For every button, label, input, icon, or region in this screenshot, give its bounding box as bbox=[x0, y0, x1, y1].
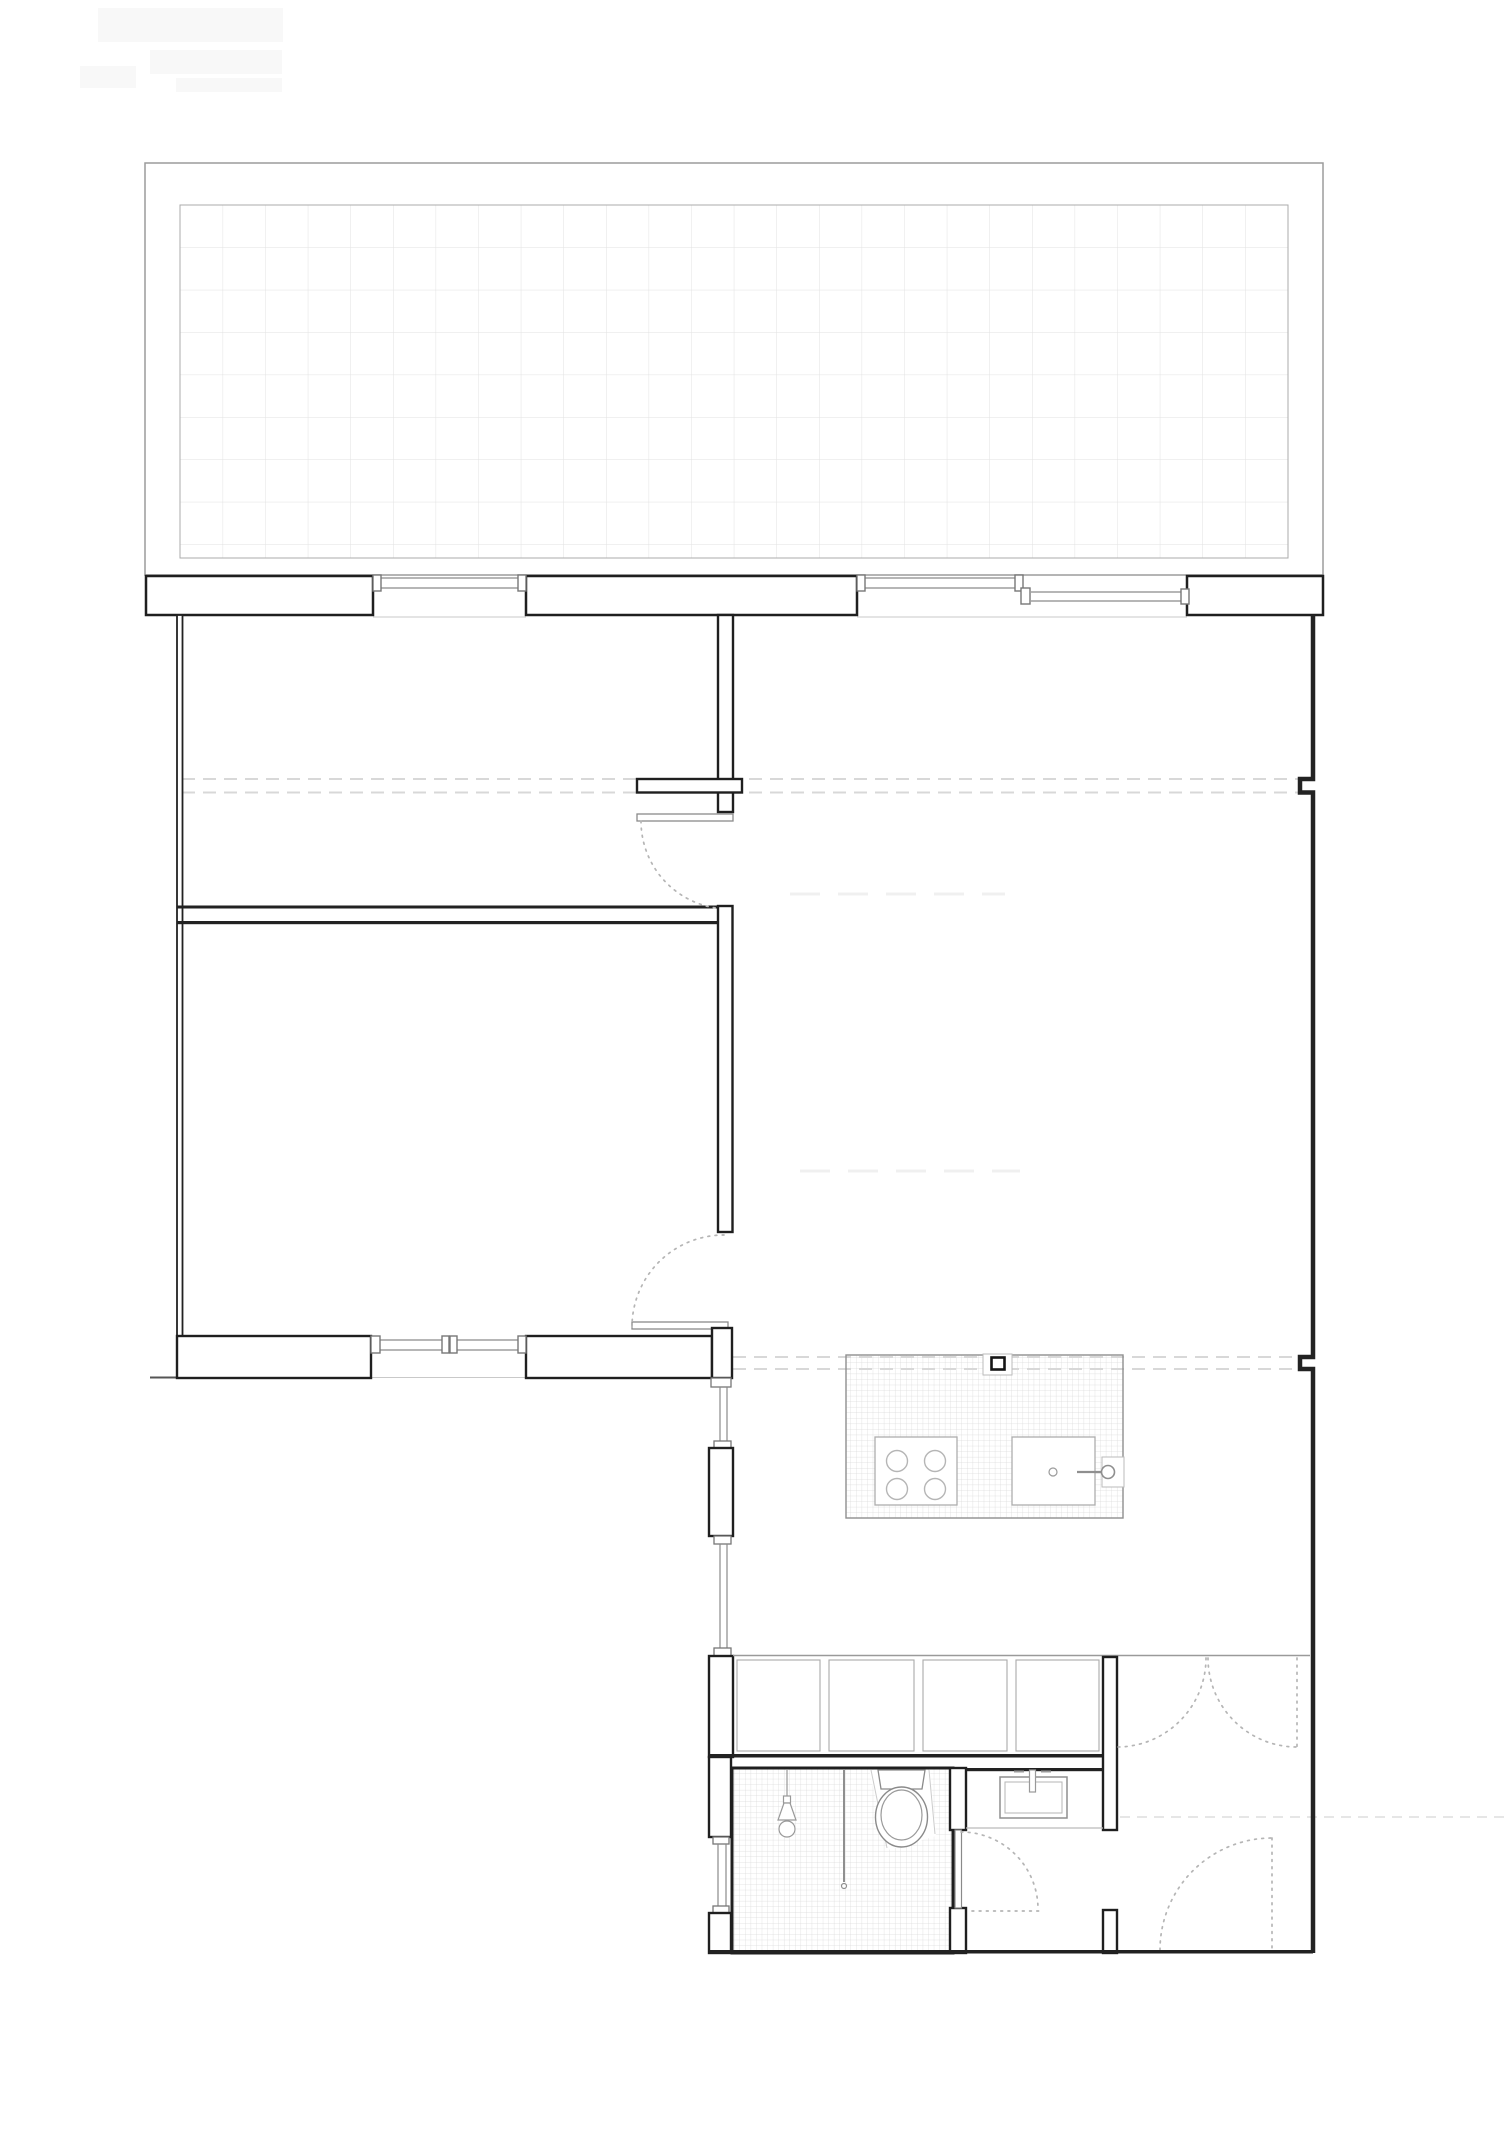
bathroom bbox=[732, 1768, 953, 1953]
toilet bbox=[876, 1770, 928, 1847]
faint-print-artifact bbox=[80, 8, 283, 92]
closet-compartment bbox=[1016, 1660, 1099, 1751]
floor-plan-sheet: Apartment floor plan with roof terrace bbox=[0, 0, 1512, 2138]
wall-segment bbox=[1187, 576, 1323, 615]
closet-row bbox=[709, 1660, 1103, 1758]
north-wall-band bbox=[146, 575, 1323, 617]
door-leaf bbox=[955, 1830, 962, 1908]
basin-faucet bbox=[1030, 1770, 1036, 1792]
room2-south-wall bbox=[150, 1328, 732, 1378]
entry-door bbox=[1160, 1838, 1272, 1950]
inter-room-wall bbox=[177, 906, 733, 925]
door-swing-arc bbox=[1160, 1838, 1272, 1950]
south-wall-line bbox=[709, 1950, 1313, 1954]
terrace-window-3 bbox=[1021, 588, 1189, 604]
jamb-cap bbox=[713, 1837, 729, 1844]
terrace-window-1 bbox=[373, 575, 526, 591]
jamb-cap bbox=[714, 1536, 731, 1544]
door-swing-arc bbox=[641, 821, 729, 909]
wall-stub bbox=[637, 779, 742, 793]
wall-segment bbox=[709, 1448, 733, 1536]
floor-plan-drawing: Apartment floor plan with roof terrace bbox=[0, 0, 1512, 2138]
room2-east-wall-and-door bbox=[632, 906, 733, 1329]
door-swing-arc bbox=[632, 1235, 724, 1327]
washbasin bbox=[1000, 1770, 1067, 1818]
west-wall-lower bbox=[709, 1378, 733, 1953]
wall-segment bbox=[709, 1913, 731, 1953]
door-leaf bbox=[637, 814, 733, 821]
roof-terrace bbox=[145, 163, 1323, 575]
closet-front-wall bbox=[709, 1754, 1103, 1758]
terrace-window-2 bbox=[857, 575, 1023, 591]
stove bbox=[875, 1437, 957, 1505]
door-swing-arc-right bbox=[1208, 1658, 1297, 1747]
wall-stub bbox=[950, 1768, 966, 1830]
room1-east-wall-and-door bbox=[637, 615, 742, 909]
wall-segment bbox=[709, 1757, 731, 1837]
wall-segment bbox=[709, 1656, 733, 1757]
terrace-tile-grid bbox=[180, 205, 1288, 558]
wall-segment bbox=[146, 576, 373, 615]
wall-segment bbox=[177, 1336, 371, 1378]
wall-segment bbox=[526, 576, 857, 615]
partition-wall bbox=[718, 906, 733, 1232]
closet-compartment bbox=[923, 1660, 1007, 1751]
faucet bbox=[1102, 1466, 1115, 1479]
jamb-cap bbox=[711, 1378, 731, 1387]
east-exterior-wall bbox=[1300, 615, 1313, 1953]
column bbox=[992, 1358, 1005, 1370]
faint-floor-marks bbox=[790, 894, 1020, 1171]
closet-compartment bbox=[829, 1660, 914, 1751]
wall-stub bbox=[950, 1908, 966, 1953]
room2-south-window bbox=[371, 1336, 526, 1353]
door-jamb-block bbox=[712, 1328, 732, 1378]
kitchen-island bbox=[846, 1354, 1124, 1518]
washbasin-niche bbox=[966, 1768, 1103, 1828]
door-swing-arc bbox=[961, 1832, 1038, 1909]
door-swing-arc-left bbox=[1117, 1658, 1206, 1747]
wall-segment bbox=[526, 1336, 712, 1378]
west-wall-upper bbox=[177, 615, 183, 1336]
hall-west-wall-stub-lower bbox=[1103, 1910, 1117, 1953]
closet-compartment bbox=[737, 1660, 820, 1751]
hall-west-wall-stub bbox=[1103, 1657, 1117, 1830]
hall-double-door bbox=[1117, 1658, 1297, 1747]
